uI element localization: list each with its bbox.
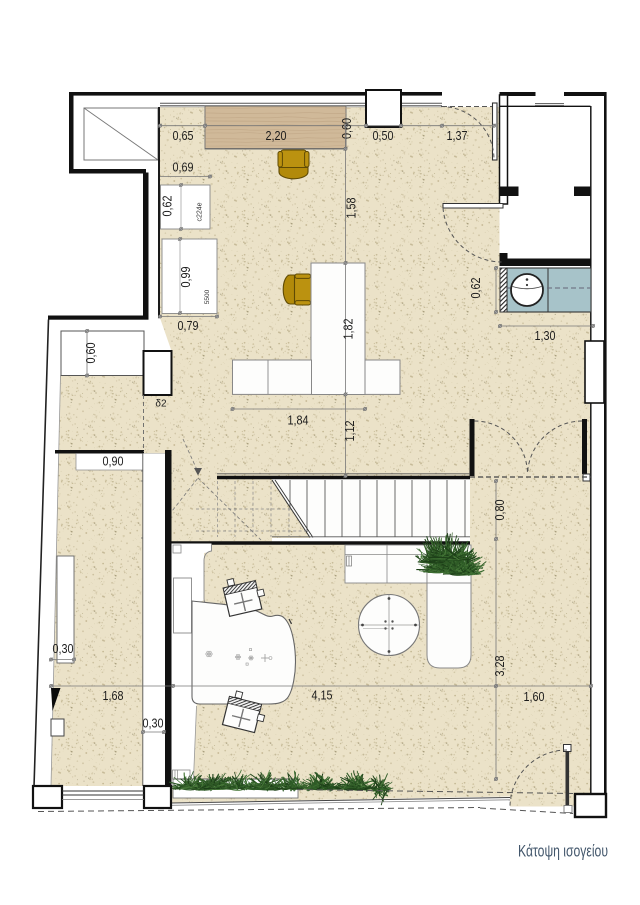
- svg-text:0,69: 0,69: [173, 160, 194, 175]
- svg-text:1,37: 1,37: [447, 128, 468, 143]
- svg-text:0,62: 0,62: [160, 196, 175, 217]
- svg-text:0,65: 0,65: [173, 128, 194, 143]
- svg-text:0,60: 0,60: [83, 343, 98, 364]
- svg-text:1,12: 1,12: [342, 421, 357, 442]
- svg-text:5500: 5500: [204, 289, 211, 304]
- svg-text:0,62: 0,62: [468, 278, 483, 299]
- svg-text:0,60: 0,60: [339, 118, 354, 139]
- svg-text:1,68: 1,68: [103, 688, 124, 703]
- svg-text:0,30: 0,30: [53, 641, 74, 656]
- svg-text:1,30: 1,30: [535, 328, 556, 343]
- svg-text:4,15: 4,15: [312, 688, 333, 703]
- svg-text:1,82: 1,82: [341, 319, 356, 340]
- svg-text:1,58: 1,58: [344, 198, 359, 219]
- svg-text:0,99: 0,99: [178, 267, 193, 288]
- svg-text:0,90: 0,90: [103, 454, 124, 469]
- svg-text:0,50: 0,50: [373, 128, 394, 143]
- svg-text:0,79: 0,79: [178, 318, 199, 333]
- svg-text:1,84: 1,84: [288, 413, 309, 428]
- svg-text:0,30: 0,30: [143, 716, 164, 731]
- svg-text:3,28: 3,28: [492, 656, 507, 677]
- svg-text:δ2: δ2: [155, 399, 167, 410]
- svg-text:2,20: 2,20: [266, 128, 287, 143]
- svg-text:1,60: 1,60: [524, 689, 545, 704]
- svg-text:0,80: 0,80: [492, 500, 507, 521]
- svg-text:c224e: c224e: [197, 202, 204, 221]
- svg-text:Κάτοψη ισογείου: Κάτοψη ισογείου: [518, 843, 608, 861]
